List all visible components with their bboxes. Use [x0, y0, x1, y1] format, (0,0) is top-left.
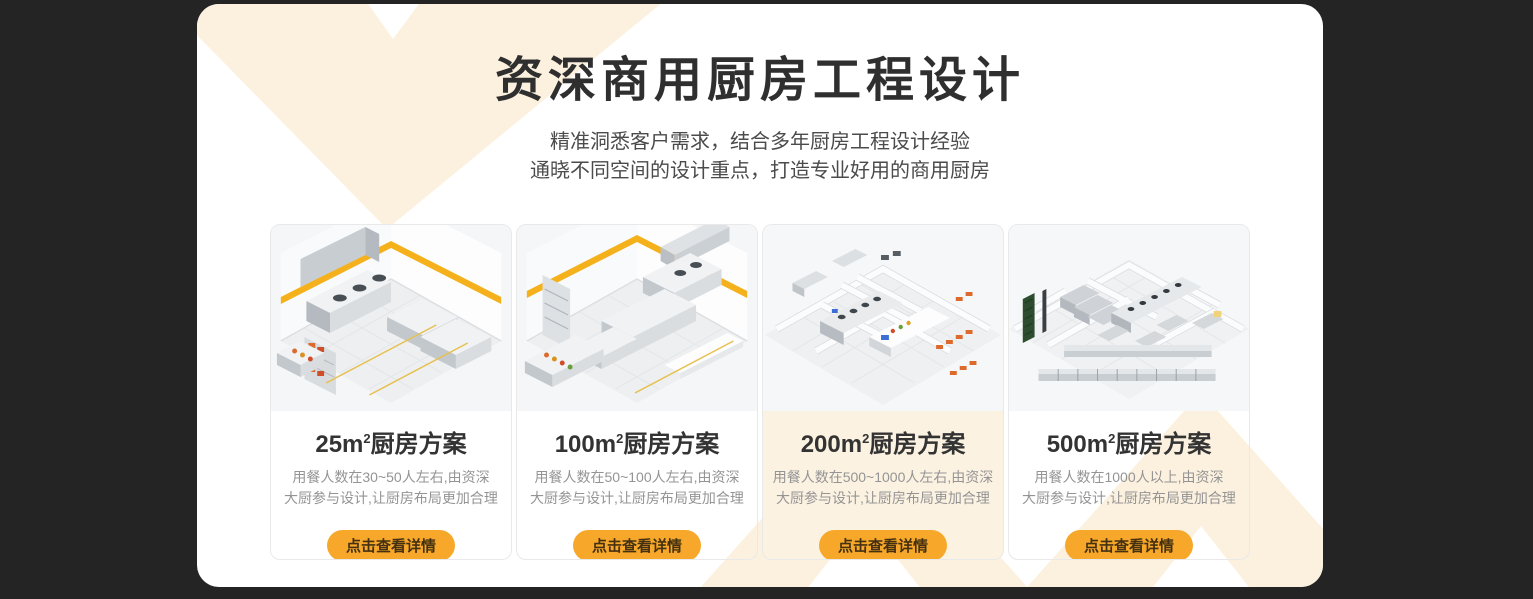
subtitle-line-2: 通晓不同空间的设计重点，打造专业好用的商用厨房: [197, 157, 1323, 186]
plan-card-25m2: 25m2厨房方案 用餐人数在30~50人左右,由资深 大厨参与设计,让厨房布局更…: [270, 224, 512, 560]
card-body: 25m2厨房方案 用餐人数在30~50人左右,由资深 大厨参与设计,让厨房布局更…: [271, 411, 511, 560]
card-title-suffix: 厨房方案: [1115, 431, 1211, 458]
card-description-line-2: 大厨参与设计,让厨房布局更加合理: [763, 488, 1003, 509]
content-panel: 资深商用厨房工程设计 精准洞悉客户需求，结合多年厨房工程设计经验 通晓不同空间的…: [197, 4, 1323, 587]
card-title-suffix: 厨房方案: [371, 431, 467, 458]
card-area: 100m: [555, 431, 616, 458]
card-title: 500m2厨房方案: [1009, 424, 1249, 460]
card-area: 25m: [315, 431, 363, 458]
card-title-suffix: 厨房方案: [869, 431, 965, 458]
card-area: 500m: [1047, 431, 1108, 458]
kitchen-isometric-render-200m2: [763, 225, 1003, 411]
page-background: { "theme": { "page_bg": "#242424", "pane…: [0, 0, 1533, 599]
plan-cards-row: 25m2厨房方案 用餐人数在30~50人左右,由资深 大厨参与设计,让厨房布局更…: [197, 224, 1323, 560]
card-area-sup: 2: [363, 431, 370, 446]
card-description: 用餐人数在500~1000人左右,由资深 大厨参与设计,让厨房布局更加合理: [763, 467, 1003, 509]
plan-card-200m2: 200m2厨房方案 用餐人数在500~1000人左右,由资深 大厨参与设计,让厨…: [762, 224, 1004, 560]
card-description-line-1: 用餐人数在1000人以上,由资深: [1009, 467, 1249, 488]
card-title: 200m2厨房方案: [763, 424, 1003, 460]
card-description-line-1: 用餐人数在30~50人左右,由资深: [271, 467, 511, 488]
card-description: 用餐人数在50~100人左右,由资深 大厨参与设计,让厨房布局更加合理: [517, 467, 757, 509]
kitchen-isometric-render-500m2: [1009, 225, 1249, 411]
kitchen-isometric-render-100m2: [517, 225, 757, 411]
page-title: 资深商用厨房工程设计: [197, 4, 1323, 110]
view-details-button[interactable]: 点击查看详情: [1065, 530, 1193, 560]
card-area: 200m: [801, 431, 862, 458]
plan-card-500m2: 500m2厨房方案 用餐人数在1000人以上,由资深 大厨参与设计,让厨房布局更…: [1008, 224, 1250, 560]
card-description-line-1: 用餐人数在500~1000人左右,由资深: [763, 467, 1003, 488]
page-subtitle: 精准洞悉客户需求，结合多年厨房工程设计经验 通晓不同空间的设计重点，打造专业好用…: [197, 128, 1323, 186]
card-description: 用餐人数在30~50人左右,由资深 大厨参与设计,让厨房布局更加合理: [271, 467, 511, 509]
card-body: 100m2厨房方案 用餐人数在50~100人左右,由资深 大厨参与设计,让厨房布…: [517, 411, 757, 560]
view-details-button[interactable]: 点击查看详情: [327, 530, 455, 560]
view-details-button[interactable]: 点击查看详情: [573, 530, 701, 560]
card-description-line-1: 用餐人数在50~100人左右,由资深: [517, 467, 757, 488]
card-body: 200m2厨房方案 用餐人数在500~1000人左右,由资深 大厨参与设计,让厨…: [763, 411, 1003, 560]
card-title: 25m2厨房方案: [271, 424, 511, 460]
card-description-line-2: 大厨参与设计,让厨房布局更加合理: [1009, 488, 1249, 509]
card-body: 500m2厨房方案 用餐人数在1000人以上,由资深 大厨参与设计,让厨房布局更…: [1009, 411, 1249, 560]
kitchen-isometric-render-25m2: [271, 225, 511, 411]
card-description: 用餐人数在1000人以上,由资深 大厨参与设计,让厨房布局更加合理: [1009, 467, 1249, 509]
card-description-line-2: 大厨参与设计,让厨房布局更加合理: [271, 488, 511, 509]
subtitle-line-1: 精准洞悉客户需求，结合多年厨房工程设计经验: [197, 128, 1323, 157]
card-title-suffix: 厨房方案: [623, 431, 719, 458]
card-description-line-2: 大厨参与设计,让厨房布局更加合理: [517, 488, 757, 509]
plan-card-100m2: 100m2厨房方案 用餐人数在50~100人左右,由资深 大厨参与设计,让厨房布…: [516, 224, 758, 560]
view-details-button[interactable]: 点击查看详情: [819, 530, 947, 560]
card-title: 100m2厨房方案: [517, 424, 757, 460]
